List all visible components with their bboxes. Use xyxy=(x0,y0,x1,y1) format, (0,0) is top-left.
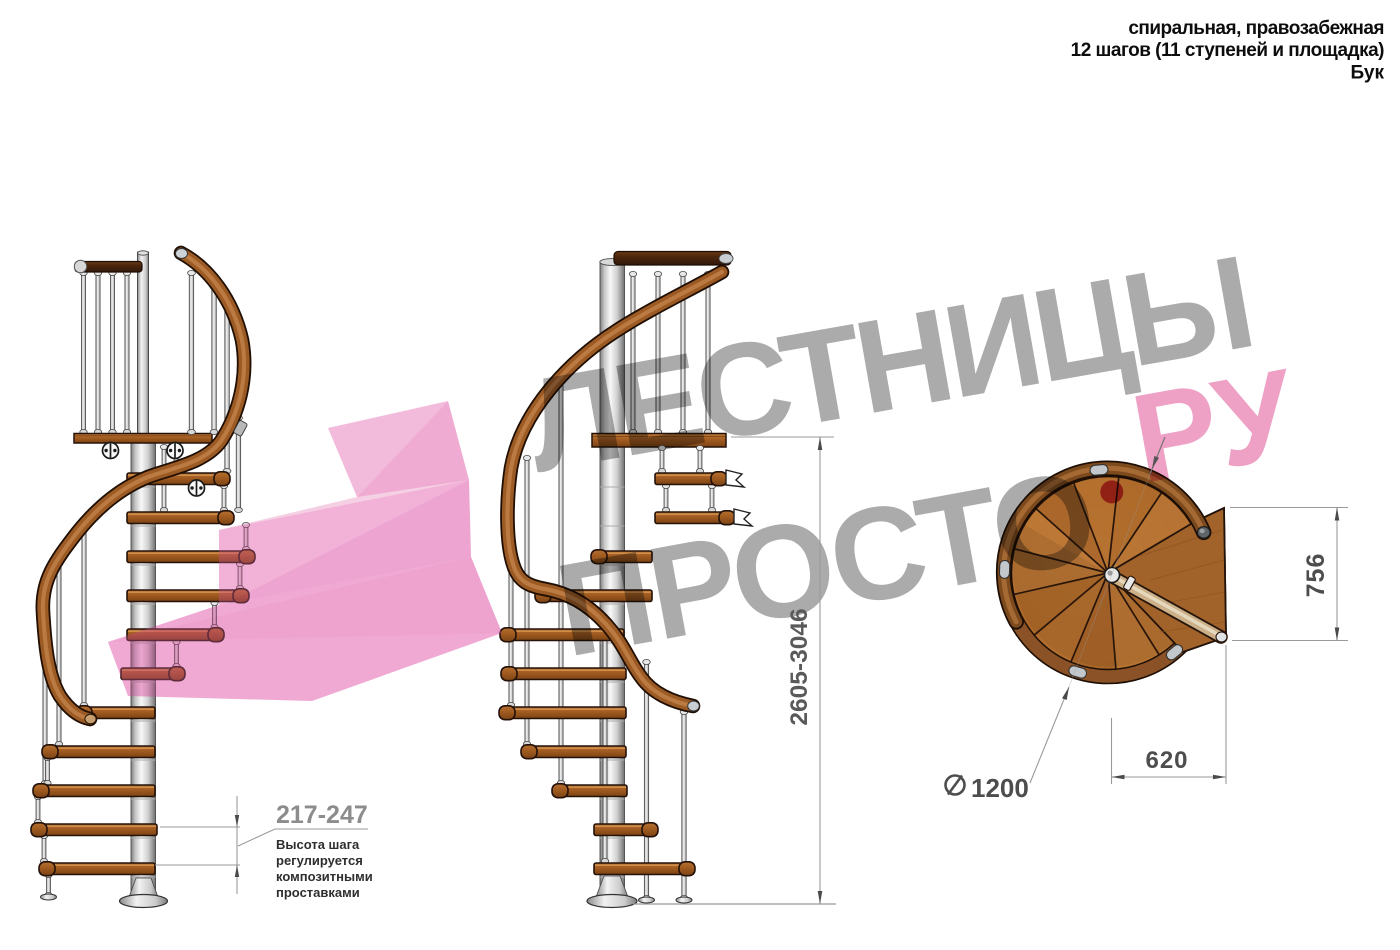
svg-text:12 шагов (11 ступеней и площад: 12 шагов (11 ступеней и площадка) xyxy=(1071,40,1385,61)
svg-text:РУ: РУ xyxy=(1122,342,1307,510)
svg-text:217-247: 217-247 xyxy=(276,801,368,829)
svg-text:Бук: Бук xyxy=(1351,63,1385,84)
svg-text:1200: 1200 xyxy=(971,773,1029,803)
svg-text:регулируется: регулируется xyxy=(276,853,363,868)
svg-text:756: 756 xyxy=(1302,553,1330,598)
svg-text:620: 620 xyxy=(1145,747,1188,774)
svg-text:2605-3046: 2605-3046 xyxy=(786,608,813,725)
svg-text:проставками: проставками xyxy=(276,885,360,900)
svg-text:Высота шага: Высота шага xyxy=(276,837,360,852)
svg-text:композитными: композитными xyxy=(276,869,373,884)
svg-text:спиральная, правозабежная: спиральная, правозабежная xyxy=(1128,18,1384,39)
